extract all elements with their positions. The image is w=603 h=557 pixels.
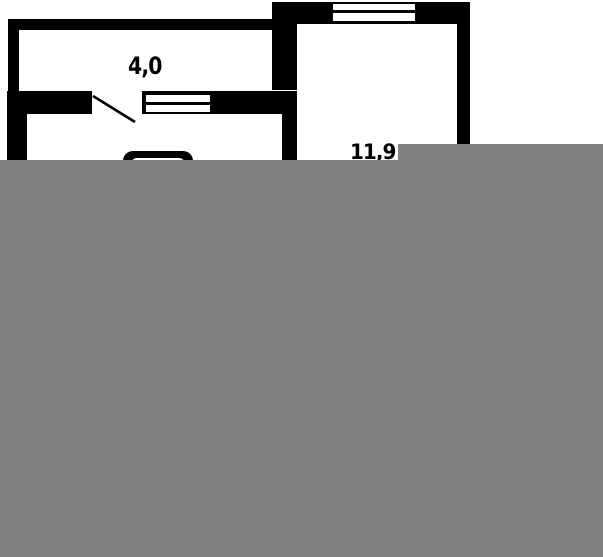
wall-divider-lower [282,110,297,160]
window-icon [142,91,215,114]
window-pane [146,105,210,112]
wall-left-lower [7,91,27,160]
wall-right-outer [457,24,470,144]
window-pane [333,13,415,21]
floor-plan: 4,0 11,9 [0,0,603,557]
window-pane [146,95,210,102]
window-icon [330,2,418,24]
wall-left-upper [8,19,19,92]
wall-middle-right-segment [215,91,297,114]
gray-cover-panel-bottom [0,160,603,557]
door-swing-icon [90,93,140,126]
wall-top-left-section [8,19,273,30]
wall-divider-upper [272,24,297,90]
room-area-label: 4,0 [128,52,162,80]
window-pane [333,4,415,10]
